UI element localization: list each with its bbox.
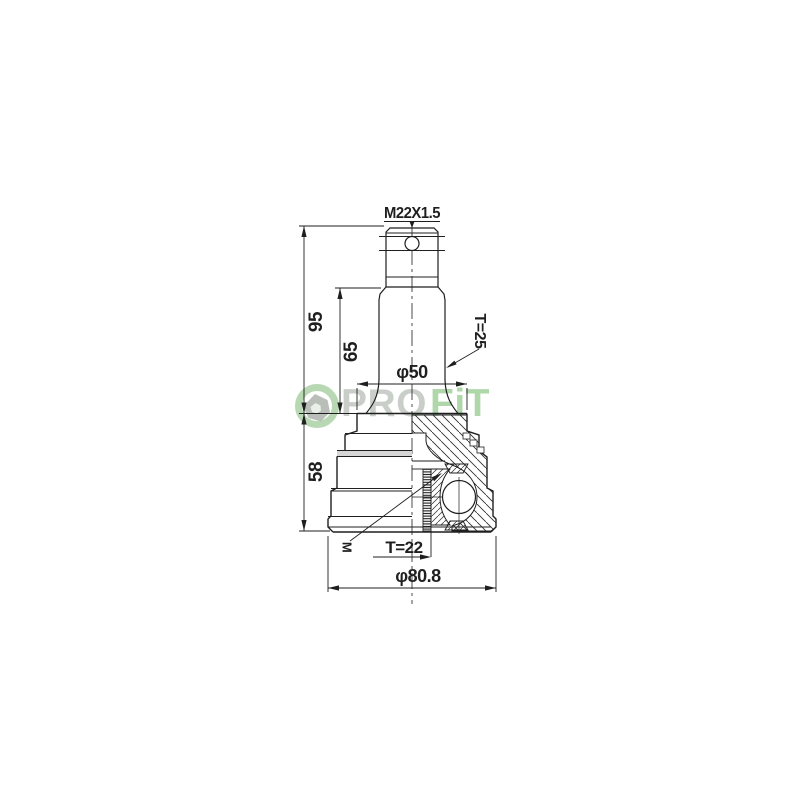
label-spline-mark-m: M [340,542,355,552]
cv-joint-technical-drawing: PRO FiT [0,0,800,800]
label-dim-phi50: φ50 [396,362,428,382]
label-dim-t25: T=25 [471,314,488,350]
cotter-pin-hole [405,237,419,251]
inner-spline-bore [423,469,431,531]
clamp-rib [463,433,470,439]
label-dim-phi808: φ80.8 [395,566,441,586]
label-dim-65: 65 [341,341,362,362]
label-dim-58: 58 [306,462,327,482]
label-dim-95: 95 [306,311,327,332]
dim-t25 [446,349,479,368]
label-thread-spec: M22X1.5 [384,205,441,222]
label-dim-t22: T=22 [385,538,422,557]
section-view [412,415,496,534]
clamp-rib [470,440,477,446]
clamp-rib [477,447,484,453]
dim-thread [384,222,440,229]
drawing-canvas: PRO FiT [0,0,800,800]
boot-groove-band [337,451,412,457]
